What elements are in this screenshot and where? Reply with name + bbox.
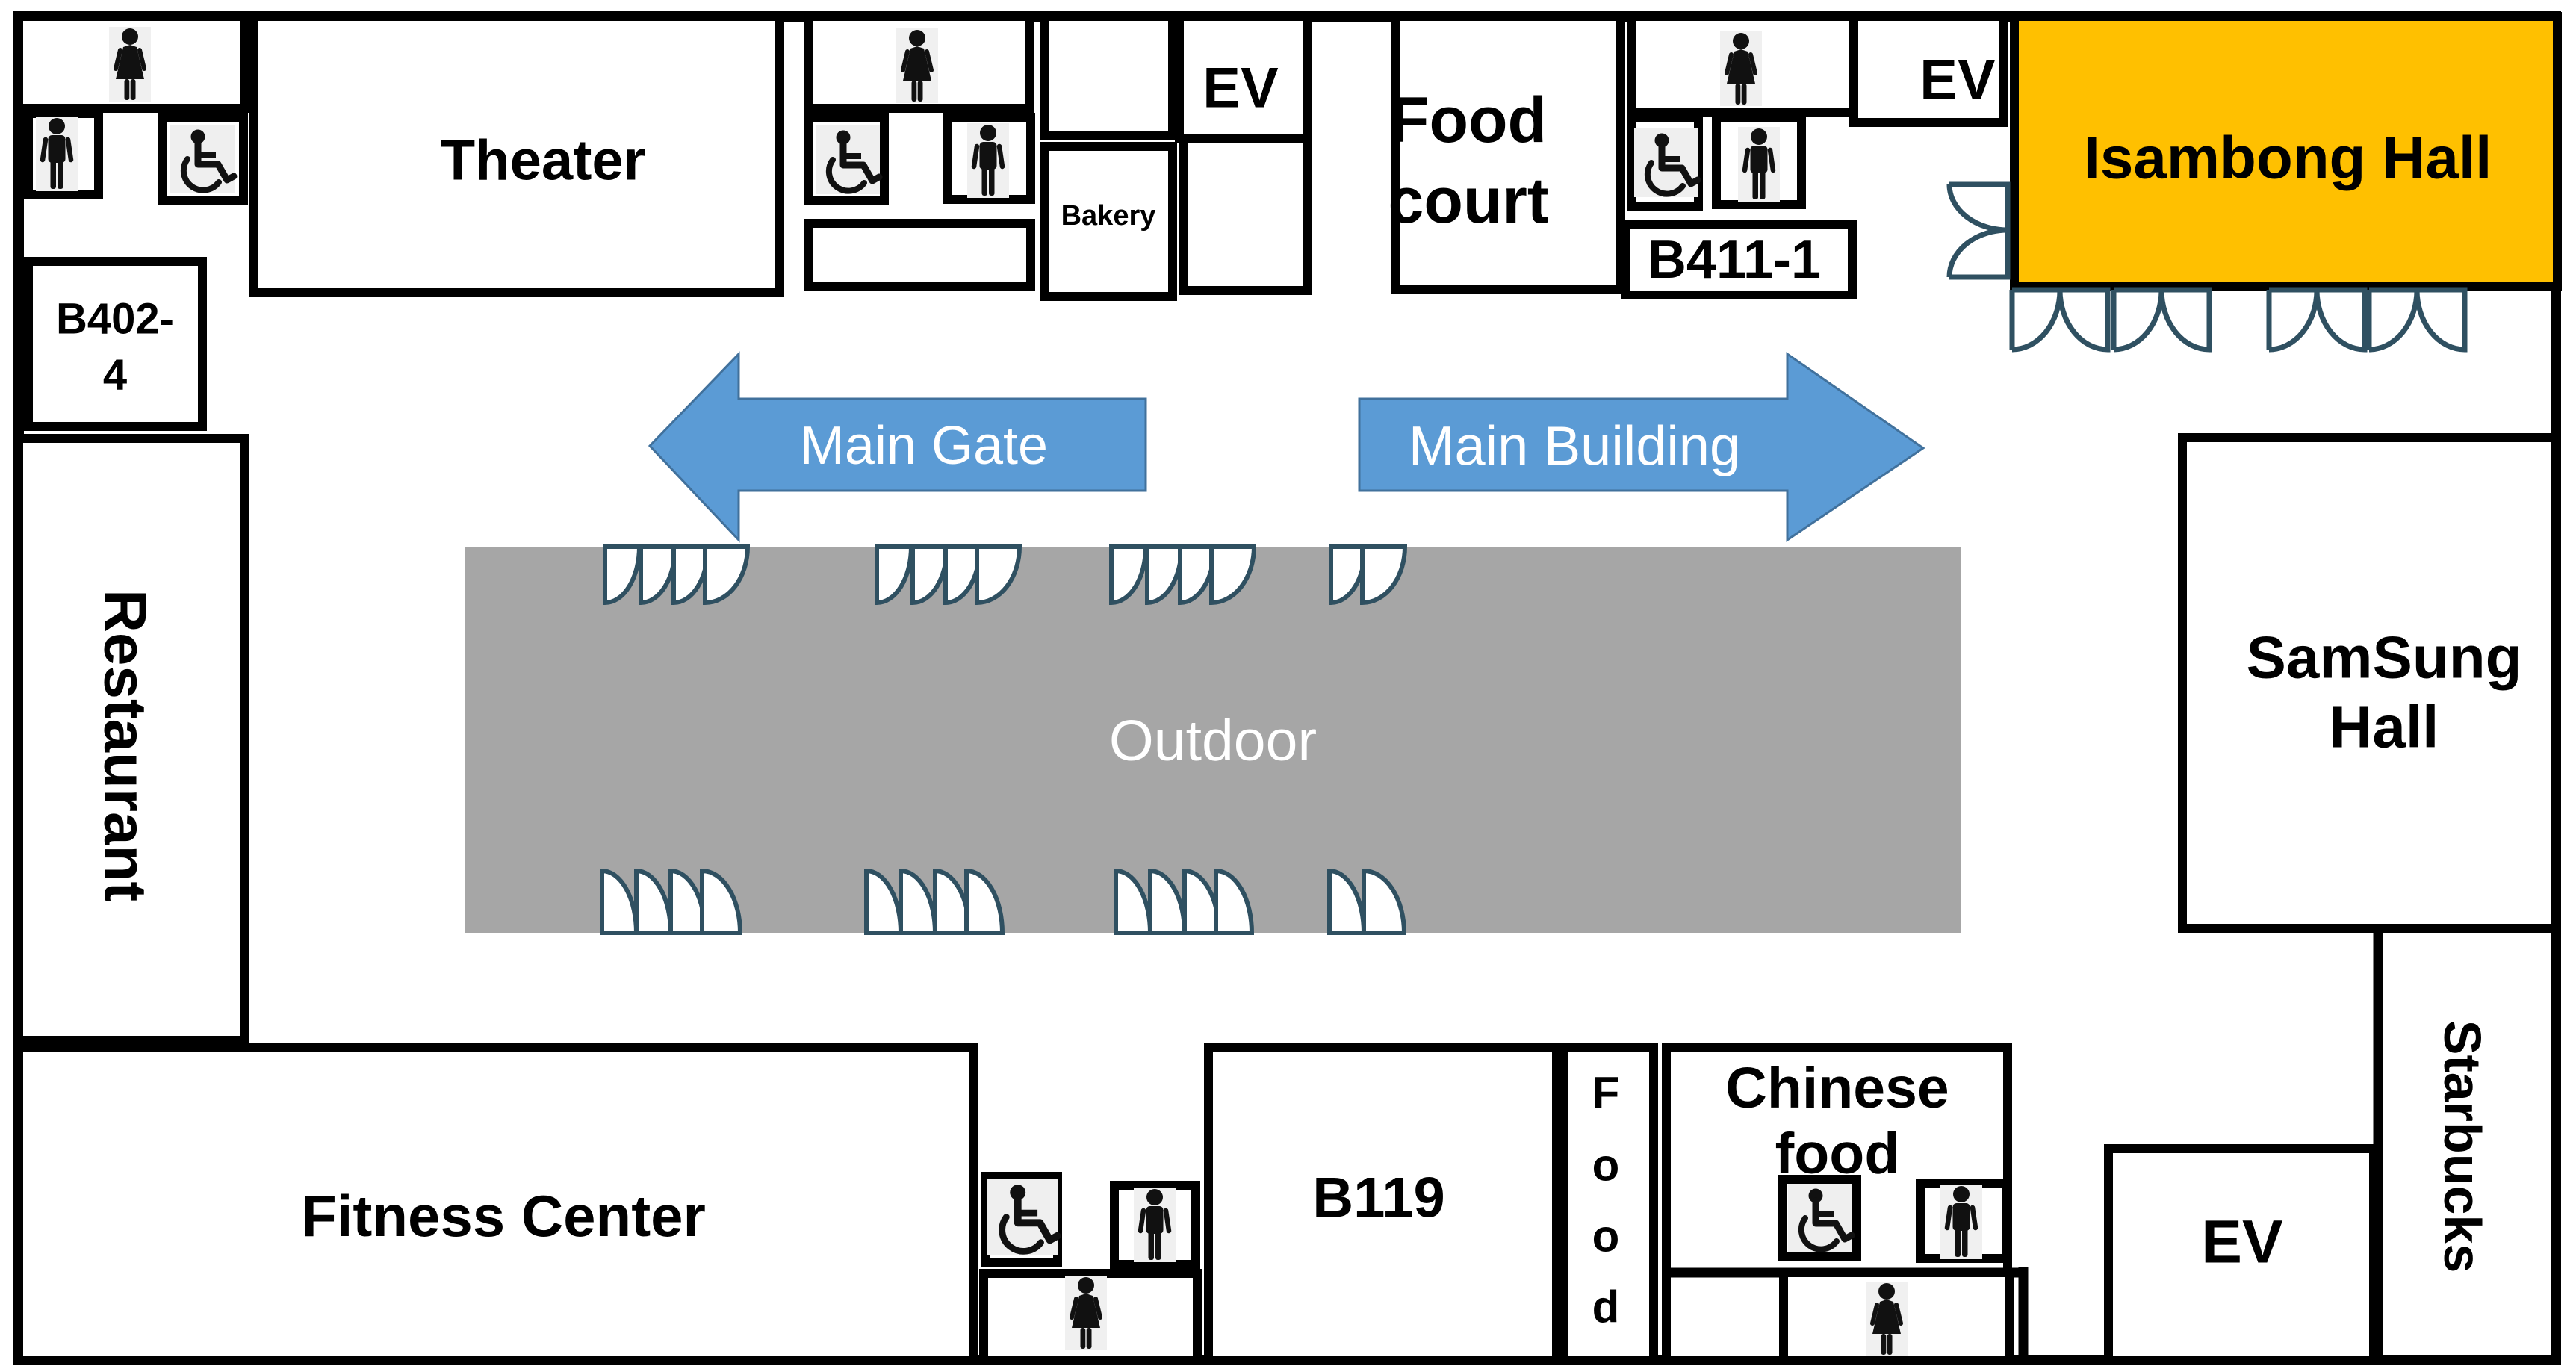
svg-text:Theater: Theater <box>441 129 646 193</box>
svg-text:B402-: B402- <box>56 295 174 344</box>
svg-text:Starbucks: Starbucks <box>2433 1020 2492 1273</box>
svg-text:o: o <box>1592 1211 1620 1261</box>
svg-text:d: d <box>1592 1282 1620 1332</box>
svg-text:F: F <box>1592 1068 1620 1118</box>
svg-text:o: o <box>1592 1140 1620 1190</box>
svg-text:Hall: Hall <box>2330 694 2439 760</box>
svg-text:EV: EV <box>2201 1208 2283 1276</box>
svg-text:Restaurant: Restaurant <box>93 589 159 901</box>
svg-text:Isambong Hall: Isambong Hall <box>2084 125 2492 191</box>
svg-text:Main Gate: Main Gate <box>800 416 1048 476</box>
svg-text:Outdoor: Outdoor <box>1109 709 1317 773</box>
svg-text:Bakery: Bakery <box>1061 200 1156 232</box>
svg-text:EV: EV <box>1202 57 1279 120</box>
svg-text:Fitness Center: Fitness Center <box>301 1183 706 1249</box>
svg-text:B119: B119 <box>1312 1167 1445 1230</box>
svg-text:4: 4 <box>103 351 127 400</box>
svg-text:court: court <box>1388 165 1549 237</box>
svg-text:Main Building: Main Building <box>1409 415 1740 477</box>
svg-text:EV: EV <box>1919 49 1996 112</box>
svg-text:Chinese: Chinese <box>1725 1056 1949 1120</box>
svg-text:Food: Food <box>1390 84 1547 156</box>
svg-text:B411-1: B411-1 <box>1648 230 1821 290</box>
svg-text:SamSung: SamSung <box>2247 624 2522 691</box>
